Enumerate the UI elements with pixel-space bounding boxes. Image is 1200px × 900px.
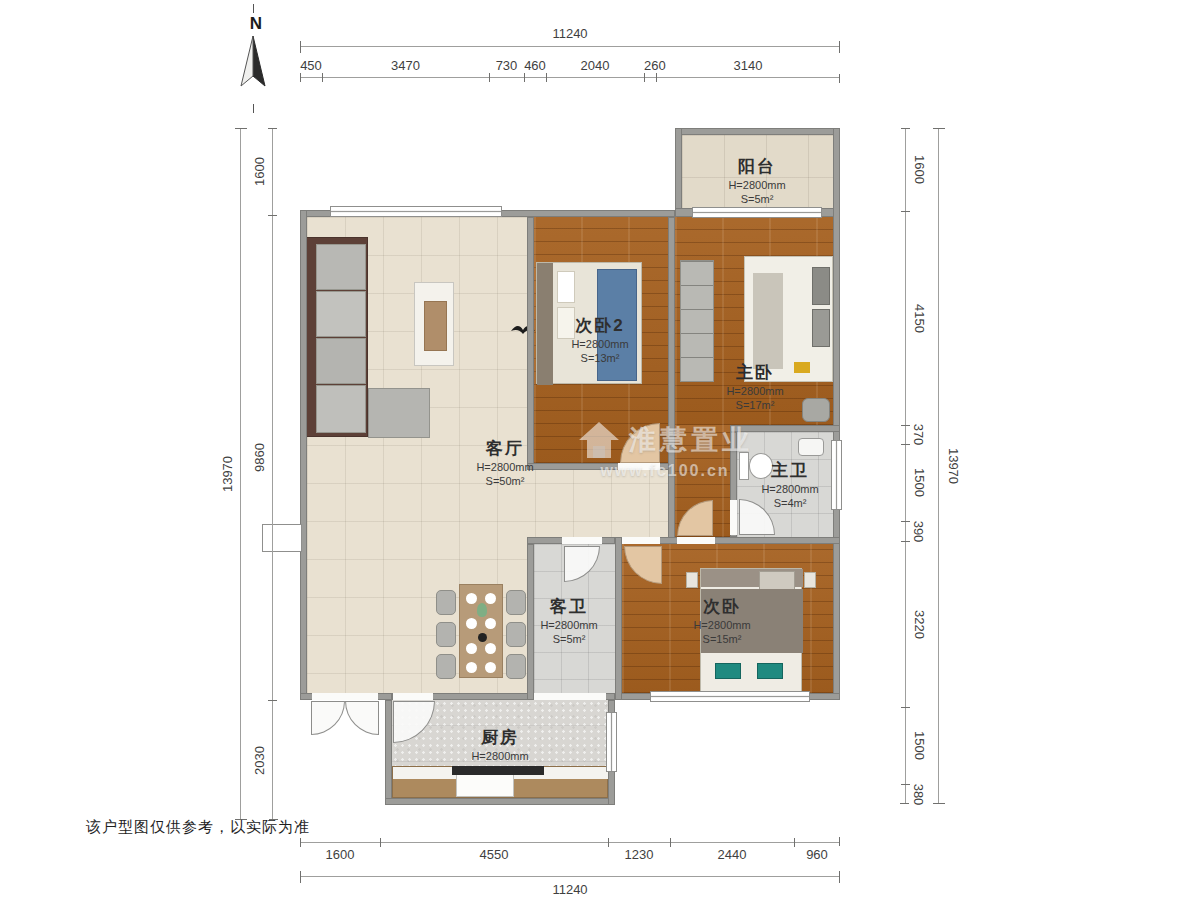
room-label-guest-bath: 客卫 H=2800mm S=5m² — [523, 596, 615, 647]
dim-segment: 1500 — [905, 444, 926, 521]
dim-segment: 9860 — [252, 215, 273, 700]
dim-segment: 960 — [794, 842, 840, 862]
sofa-cushion — [316, 385, 366, 433]
bed-blanket — [753, 273, 783, 369]
dim-segment: 3220 — [905, 541, 926, 707]
room-area: S=15m² — [672, 632, 772, 646]
dim-segment: 3470 — [322, 58, 489, 78]
dim-label: 3140 — [734, 58, 763, 73]
dim-bottom-segments: 1600 4550 1230 2440 960 — [300, 842, 840, 862]
room-area: S=17m² — [700, 398, 810, 412]
dim-label: 11240 — [300, 882, 840, 897]
master-bath-door-opening — [730, 500, 737, 535]
floor-plan: 阳台 H=2800mm S=5m² 次卧2 H=2800mm S=13m² 主卧… — [0, 0, 1200, 900]
room-ceiling: H=2800mm — [742, 482, 838, 496]
dim-segment: 1230 — [608, 842, 670, 862]
dim-left-segments: 1600 9860 2030 — [252, 128, 273, 820]
dim-top-total: 11240 — [300, 46, 840, 47]
room-ceiling: H=2800mm — [707, 178, 807, 192]
dim-label: 1600 — [252, 157, 267, 186]
nightstand — [686, 572, 698, 588]
dim-label: 13970 — [220, 456, 235, 492]
room-ceiling: H=2800mm — [440, 749, 560, 763]
dining-chair — [436, 590, 456, 615]
room-label-bedroom2: 次卧2 H=2800mm S=13m² — [545, 315, 655, 366]
dim-label: 390 — [912, 520, 927, 542]
dim-label: 2440 — [718, 847, 747, 862]
plate — [485, 618, 496, 629]
kitchen-passage-opening — [534, 693, 606, 700]
dim-label: 4150 — [912, 304, 927, 333]
room-name: 阳台 — [707, 156, 807, 178]
bed-pillow — [812, 309, 830, 347]
dim-segment: 3140 — [656, 58, 840, 78]
wall — [300, 210, 307, 700]
wall — [675, 128, 840, 135]
dim-segment: 390 — [905, 521, 926, 541]
room-name: 主卧 — [700, 362, 810, 384]
dim-label: 3220 — [912, 610, 927, 639]
kitchen-stove — [452, 766, 544, 775]
plate — [466, 643, 477, 654]
plate — [466, 662, 477, 673]
sofa-cushion — [316, 291, 366, 337]
guest-bath-door-opening — [562, 537, 602, 544]
dim-segment: 370 — [905, 425, 926, 444]
dining-table — [459, 584, 503, 678]
dim-label: 11240 — [300, 26, 840, 41]
watermark-house-icon — [577, 420, 621, 460]
dim-label: 1230 — [625, 847, 654, 862]
dim-label: 960 — [806, 847, 828, 862]
room-label-bedroom: 次卧 H=2800mm S=15m² — [672, 596, 772, 647]
dim-label: 1600 — [326, 847, 355, 862]
dim-label: 1600 — [912, 155, 927, 184]
dim-label: 370 — [912, 424, 927, 446]
dim-left-total: 13970 — [240, 128, 241, 820]
table-bowl — [478, 633, 487, 642]
dim-segment: 260 — [644, 58, 656, 78]
north-arrow-icon — [231, 34, 275, 100]
room-ceiling: H=2800mm — [523, 618, 615, 632]
dining-chair — [506, 654, 526, 679]
dim-label: 380 — [912, 783, 927, 805]
dim-segment: 4550 — [380, 842, 608, 862]
dim-label: 2030 — [252, 746, 267, 775]
bath-sink — [798, 438, 824, 456]
watermark-url: www.fc100.cn — [530, 462, 800, 480]
dining-chair — [436, 622, 456, 647]
sofa-cushion — [316, 244, 366, 290]
dim-segment: 1600 — [905, 128, 926, 211]
dim-top-segments: 450 3470 730 460 2040 260 3140 — [300, 58, 840, 78]
balcony-slider — [692, 207, 822, 218]
entry-door-swing — [311, 701, 345, 735]
wall — [833, 128, 840, 700]
plate — [485, 593, 496, 604]
dim-segment: 380 — [905, 784, 926, 804]
wall — [668, 217, 675, 544]
dim-label: 13970 — [946, 448, 961, 484]
master-door-opening — [677, 537, 715, 544]
entry-opening — [312, 693, 378, 700]
tv-stand — [414, 282, 454, 366]
window — [330, 206, 502, 217]
watermark: 淮慧置业 www.fc100.cn — [530, 420, 800, 480]
room-area: S=5m² — [523, 632, 615, 646]
room-ceiling: H=2800mm — [700, 384, 810, 398]
wall — [385, 700, 392, 805]
bedroom-door-opening — [622, 537, 660, 544]
dim-segment: 2030 — [252, 700, 273, 820]
plate — [485, 643, 496, 654]
dim-label: 1500 — [912, 731, 927, 760]
kitchen-door-opening — [393, 693, 433, 700]
sofa — [306, 237, 368, 437]
dim-label: 1500 — [912, 468, 927, 497]
wall — [675, 128, 682, 215]
dim-segment: 2440 — [670, 842, 794, 862]
dim-right-segments: 1600 4150 370 1500 390 3220 1500 380 — [905, 128, 926, 804]
room-name: 次卧 — [672, 596, 772, 618]
plate — [485, 662, 496, 673]
dim-label: 450 — [300, 58, 322, 73]
room-label-master-bedroom: 主卧 H=2800mm S=17m² — [700, 362, 810, 413]
room-label-balcony: 阳台 H=2800mm S=5m² — [707, 156, 807, 207]
north-label: N — [250, 14, 262, 34]
dim-bottom-total: 11240 — [300, 876, 840, 877]
tv — [424, 301, 447, 351]
plate — [466, 618, 477, 629]
table-flower — [477, 603, 487, 617]
dim-label: 3470 — [391, 58, 420, 73]
dim-segment: 2040 — [546, 58, 644, 78]
bed-cushion-teal — [715, 663, 741, 679]
wall — [385, 798, 615, 805]
north-tick — [253, 4, 254, 13]
room-area: S=13m² — [545, 351, 655, 365]
dim-segment: 730 — [489, 58, 524, 78]
dining-chair — [436, 654, 456, 679]
room-name: 客卫 — [523, 596, 615, 618]
dim-label: 9860 — [252, 443, 267, 472]
north-indicator: N — [225, 4, 281, 113]
entry-door-swing — [345, 701, 379, 735]
room-name: 次卧2 — [545, 315, 655, 337]
room-name: 厨房 — [440, 727, 560, 749]
nightstand — [804, 572, 816, 588]
dim-segment: 4150 — [905, 211, 926, 425]
dim-label: 730 — [496, 58, 518, 73]
sofa-cushion — [316, 338, 366, 384]
dim-label: 460 — [524, 58, 546, 73]
room-ceiling: H=2800mm — [545, 337, 655, 351]
north-tick — [253, 104, 254, 113]
room-area: S=5m² — [707, 192, 807, 206]
room-ceiling: H=2800mm — [672, 618, 772, 632]
sofa-chaise — [368, 388, 430, 438]
watermark-brand: 淮慧置业 — [629, 422, 753, 458]
window — [650, 691, 810, 702]
plate — [466, 593, 477, 604]
bed-pillow — [812, 267, 830, 305]
bed-cushion-teal — [757, 663, 783, 679]
dim-right-total: 13970 — [938, 128, 939, 804]
disclaimer-text: 该户型图仅供参考，以实际为准 — [86, 818, 310, 837]
bed-pillow — [557, 271, 575, 303]
room-area: S=4m² — [742, 496, 838, 510]
dim-label: 4550 — [480, 847, 509, 862]
dim-segment: 1600 — [300, 842, 380, 862]
dim-segment: 1500 — [905, 707, 926, 784]
dim-label: 2040 — [581, 58, 610, 73]
dim-segment: 1600 — [252, 128, 273, 215]
dim-segment: 460 — [524, 58, 546, 78]
dim-segment: 450 — [300, 58, 322, 78]
window — [606, 712, 617, 772]
wall — [615, 537, 622, 700]
